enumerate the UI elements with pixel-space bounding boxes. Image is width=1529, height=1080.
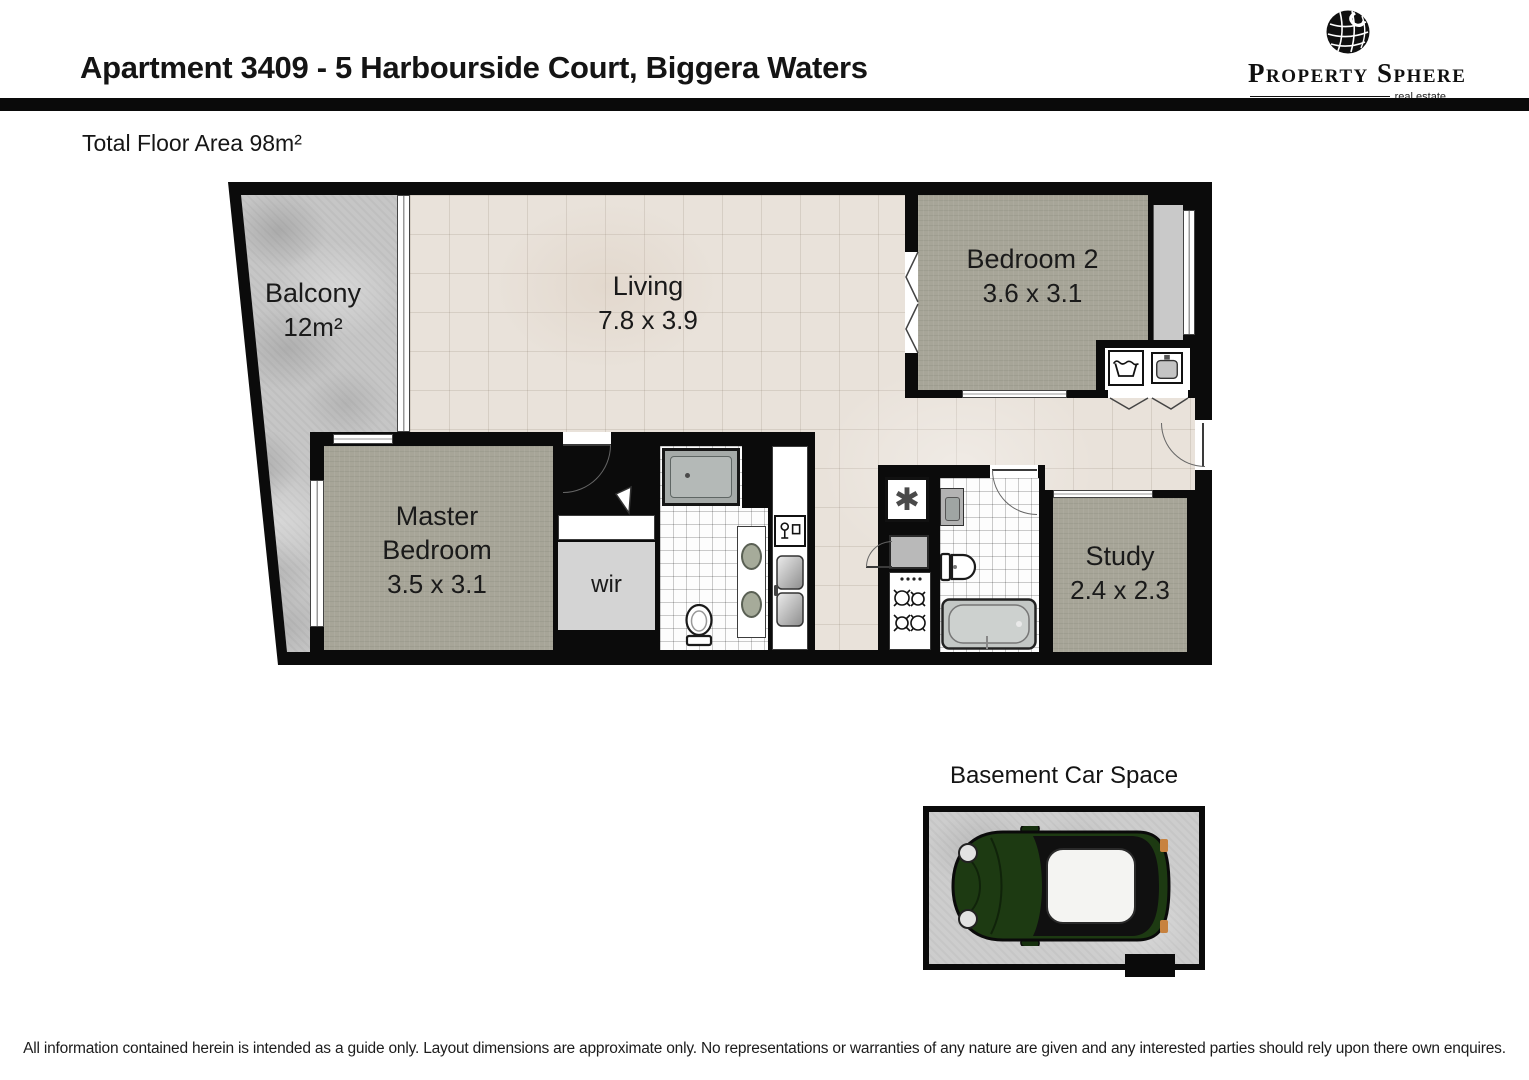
floor-plan-page: Apartment 3409 - 5 Harbourside Court, Bi… [0,0,1529,1080]
car-space-entry-marker [1125,954,1175,977]
logo-wordmark: Property Sphere [1248,58,1448,89]
ensuite-door-leaf [616,487,631,513]
disclaimer-text: All information contained herein is inte… [0,1040,1529,1058]
floor-area-label: Total Floor Area 98m² [82,130,302,157]
car-space [923,806,1205,970]
car-icon [941,826,1181,946]
page-title: Apartment 3409 - 5 Harbourside Court, Bi… [80,50,868,86]
header-divider-bar [0,98,1529,111]
logo-rule [1250,96,1390,97]
plan-overlay [228,182,1212,665]
apartment-floor-plan: Balcony 12m² Living 7.8 x 3.9 [228,182,1212,665]
car-space-title: Basement Car Space [923,762,1205,790]
property-sphere-globe-icon [1324,8,1372,56]
